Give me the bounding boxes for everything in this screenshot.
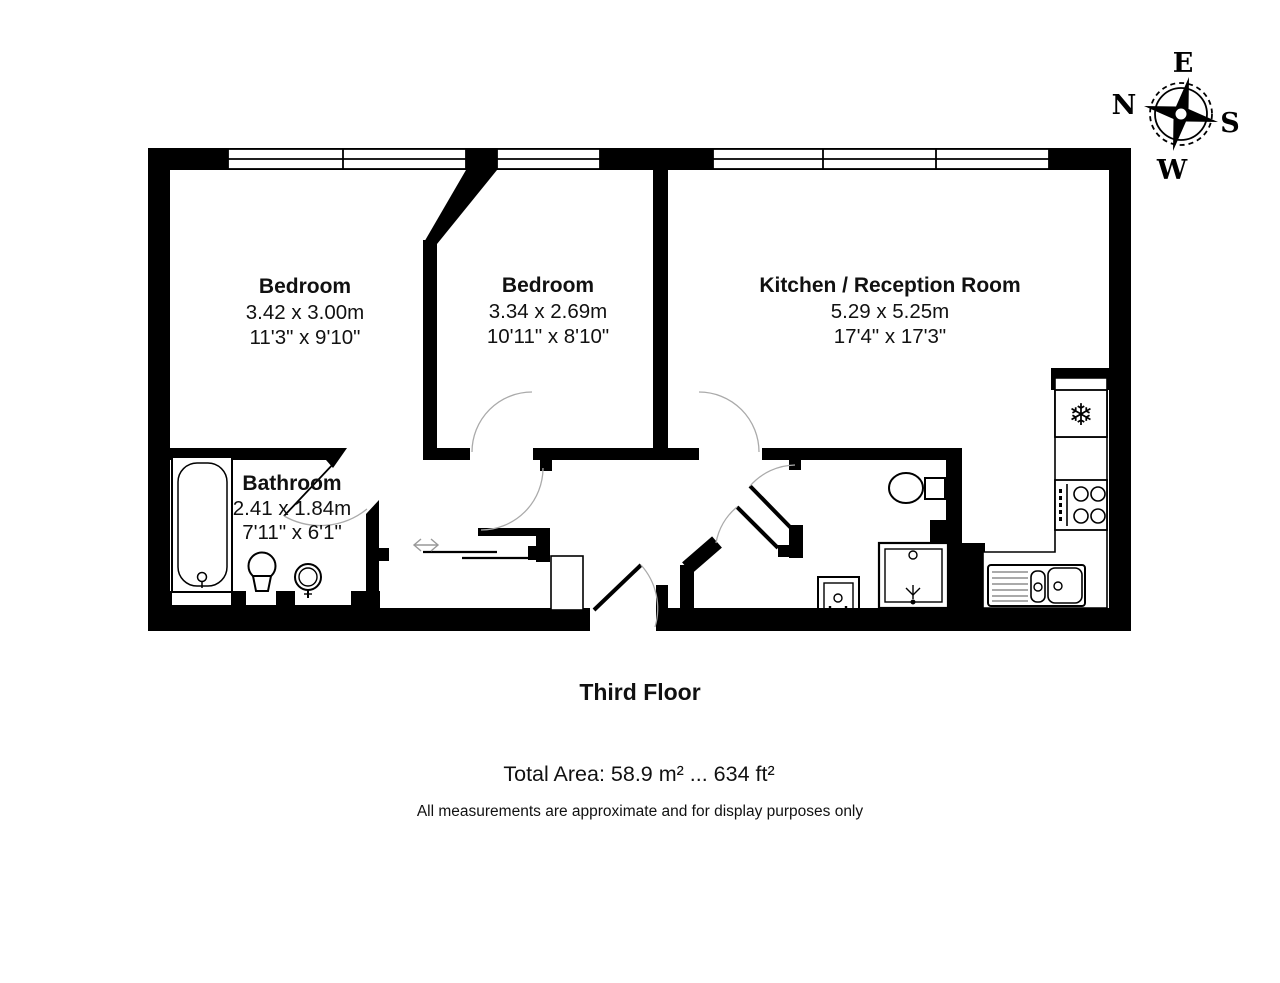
- interior-walls: [170, 170, 1109, 612]
- hallway-door-arc: [481, 468, 543, 530]
- bedroom-2-label: Bedroom 3.34 x 2.69m 10'11" x 8'10": [487, 274, 609, 348]
- svg-text:Bedroom: Bedroom: [259, 275, 351, 298]
- svg-text:3.34 x 2.69m: 3.34 x 2.69m: [489, 300, 608, 323]
- window: [713, 149, 1049, 169]
- compass-south: S: [1220, 108, 1240, 139]
- fridge-icon: ❄: [1068, 398, 1093, 433]
- fridge: ❄: [1055, 390, 1107, 437]
- window: [497, 149, 600, 169]
- kitchen-door-arc: [699, 392, 759, 452]
- kitchen-sink: [988, 565, 1085, 606]
- sliding-direction-arrow-icon: [414, 539, 438, 551]
- svg-text:Bathroom: Bathroom: [242, 472, 341, 495]
- svg-text:11'3" x 9'10": 11'3" x 9'10": [250, 326, 361, 349]
- compass-east: E: [1173, 48, 1194, 79]
- small-basin: [818, 577, 859, 613]
- bedroom2-door-arc: [472, 392, 532, 452]
- svg-text:17'4" x 17'3": 17'4" x 17'3": [834, 325, 946, 348]
- wc-door: [716, 465, 795, 548]
- svg-text:Kitchen / Reception Room: Kitchen / Reception Room: [759, 274, 1020, 297]
- shower-tray: [879, 543, 948, 608]
- sliding-door: [414, 539, 536, 558]
- svg-text:10'11" x 8'10": 10'11" x 8'10": [487, 325, 609, 348]
- wc-fixtures: [818, 473, 948, 613]
- floorplan-page: ❄: [0, 0, 1280, 983]
- bedroom-1-label: Bedroom 3.42 x 3.00m 11'3" x 9'10": [246, 275, 365, 349]
- floor-title: Third Floor: [579, 679, 700, 705]
- floor-plan: ❄: [0, 0, 1280, 983]
- total-area-text: Total Area: 58.9 m² ... 634 ft²: [503, 762, 774, 786]
- entrance-door: [594, 565, 658, 627]
- svg-text:2.41 x 1.84m: 2.41 x 1.84m: [233, 497, 352, 520]
- bathroom-label: Bathroom 2.41 x 1.84m 7'11" x 6'1": [233, 472, 352, 544]
- bathtub: [172, 457, 232, 592]
- svg-text:3.42 x 3.00m: 3.42 x 3.00m: [246, 301, 365, 324]
- svg-text:5.29 x 5.25m: 5.29 x 5.25m: [831, 300, 950, 323]
- kitchen-fixtures: ❄: [983, 378, 1107, 608]
- svg-text:7'11" x 6'1": 7'11" x 6'1": [242, 521, 342, 544]
- compass-west: W: [1156, 155, 1188, 186]
- compass-north: N: [1112, 90, 1137, 121]
- hob: [1055, 480, 1107, 530]
- footer-text: Third Floor Total Area: 58.9 m² ... 634 …: [417, 679, 864, 820]
- toilet-2: [889, 473, 945, 503]
- window: [228, 149, 466, 169]
- kitchen-label: Kitchen / Reception Room 5.29 x 5.25m 17…: [759, 274, 1020, 348]
- toilet: [249, 553, 276, 592]
- disclaimer-text: All measurements are approximate and for…: [417, 803, 864, 820]
- svg-text:Bedroom: Bedroom: [502, 274, 594, 297]
